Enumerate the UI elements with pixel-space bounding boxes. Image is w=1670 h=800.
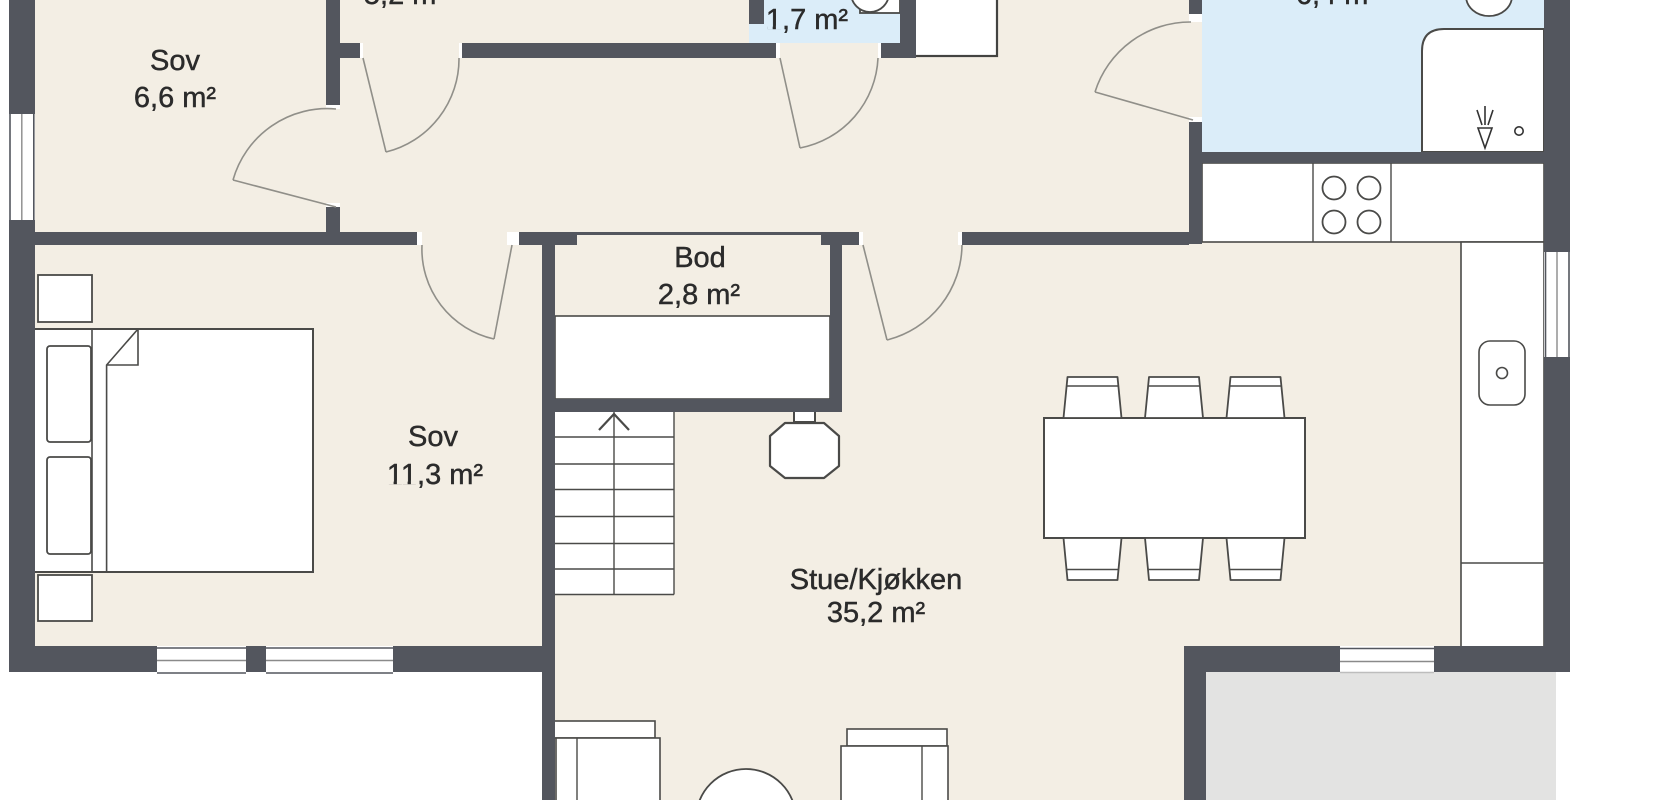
svg-text:35,2 m²: 35,2 m² (827, 597, 926, 629)
svg-text:5,2 m²: 5,2 m² (364, 0, 447, 11)
svg-text:11,3 m²: 11,3 m² (387, 459, 484, 491)
svg-text:6,6 m²: 6,6 m² (134, 82, 217, 114)
svg-text:6,4 m²: 6,4 m² (1296, 0, 1379, 11)
svg-text:Bod: Bod (674, 242, 726, 274)
svg-text:Sov: Sov (150, 45, 200, 77)
svg-text:Sov: Sov (408, 421, 458, 453)
svg-text:1,7 m²: 1,7 m² (766, 4, 849, 36)
svg-text:Stue/Kjøkken: Stue/Kjøkken (790, 564, 962, 596)
svg-text:2,8 m²: 2,8 m² (658, 279, 741, 311)
